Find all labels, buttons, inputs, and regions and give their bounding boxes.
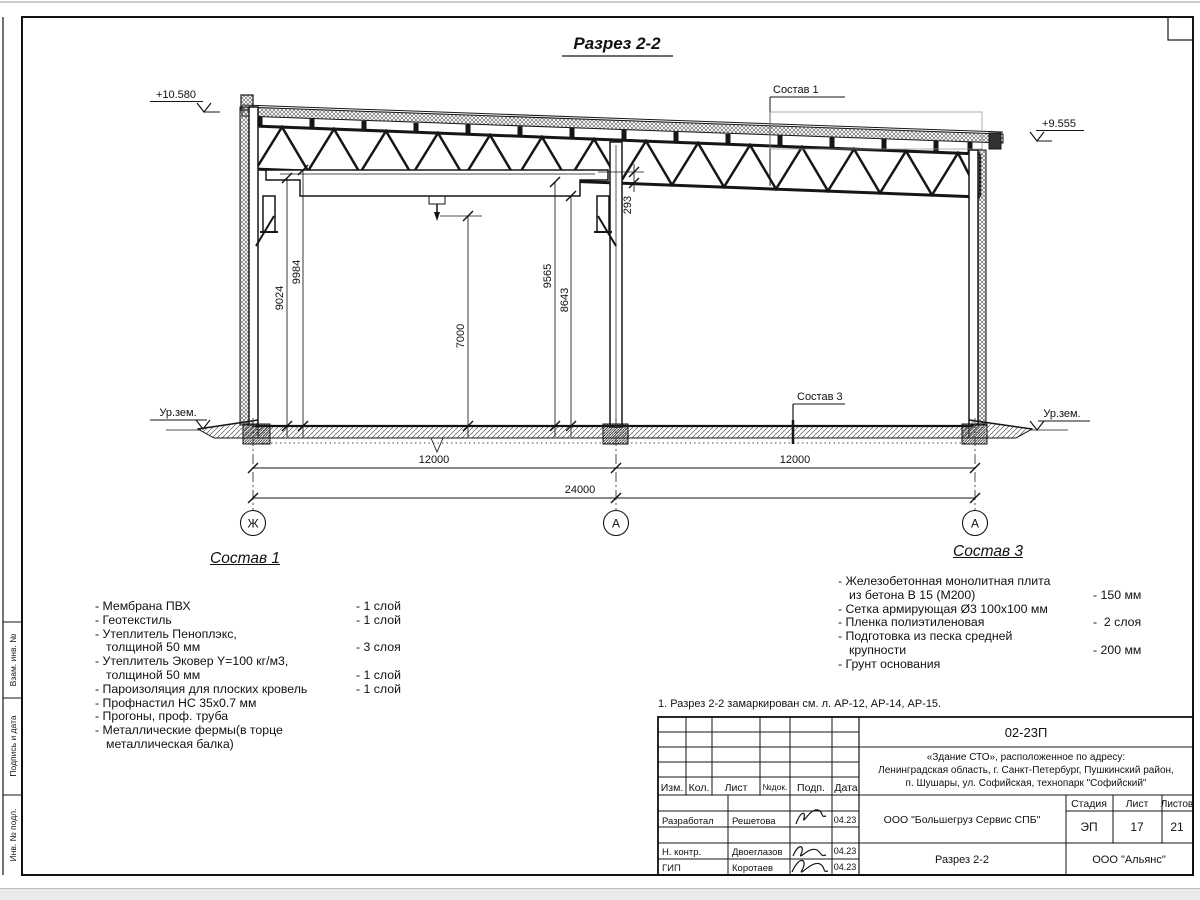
company-name: ООО "Альянс" [1092, 854, 1166, 866]
right-column [969, 150, 978, 425]
ground-label: Ур.зем. [1043, 408, 1080, 420]
ground-label: Ур.зем. [159, 407, 196, 419]
composition-item-qty: - 1 слой [356, 683, 401, 697]
signature [792, 860, 828, 872]
col-podp: Подп. [797, 782, 825, 794]
row-role: Н. контр. [662, 847, 701, 858]
composition1-block: Состав 1 - Мембрана ПВХ - 1 слой - Геоте… [95, 550, 430, 752]
project-line: п. Шушары, ул. Софийская, технопарк "Соф… [906, 777, 1147, 789]
dim-9984: 9984 [291, 260, 303, 284]
composition-item: - Мембрана ПВХ - 1 слой [95, 600, 430, 614]
composition-item: - Прогоны, проф. труба [95, 710, 430, 724]
dim-8643: 8643 [559, 288, 571, 312]
side-strip-label: Подпись и дата [8, 715, 18, 776]
composition-item-text: - Прогоны, проф. труба [95, 710, 356, 724]
roof-right-end-plate [989, 133, 1001, 149]
left-column [249, 107, 258, 425]
composition1-list: - Мембрана ПВХ - 1 слой - Геотекстиль - … [95, 600, 430, 752]
elevation-mark-left: +10.580 [150, 89, 220, 112]
leader-label: Состав 3 [797, 391, 843, 403]
page-edge-bottom [0, 888, 1200, 900]
sheet-value: 17 [1130, 820, 1144, 834]
composition-item-qty: - 1 слой [356, 669, 401, 683]
axis-letter: А [612, 517, 620, 531]
composition-item-text: - Утеплитель Эковер Y=100 кг/м3, толщино… [95, 655, 356, 683]
composition-item-text: - Мембрана ПВХ [95, 600, 356, 614]
stage-label: Стадия [1071, 798, 1107, 810]
composition-item-text: - Геотекстиль [95, 614, 356, 628]
hook-tip [434, 212, 440, 221]
row-name: Решетова [732, 816, 776, 827]
dim-293: 293 [622, 196, 634, 214]
elevation-arrow-icon [197, 103, 211, 112]
composition-item: - Пленка полиэтиленовая - 2 слоя [838, 616, 1173, 630]
composition-item-qty: - 1 слой [356, 600, 401, 614]
slab-break-mark [431, 438, 443, 452]
col-list: Лист [725, 782, 748, 794]
composition-item-text: - Пароизоляция для плоских кровель [95, 683, 356, 697]
dim-bay1: 12000 [419, 454, 450, 466]
composition-item-text: - Подготовка из песка средней крупности [838, 630, 1093, 658]
stage-value: ЭП [1080, 820, 1097, 834]
col-kol: Кол. [689, 782, 710, 794]
signature [796, 810, 826, 824]
composition-item: - Пароизоляция для плоских кровель - 1 с… [95, 683, 430, 697]
composition-item: - Грунт основания [838, 658, 1173, 672]
section-drawing-svg: Взам. инв. № Подпись и дата Инв. № подл.… [0, 0, 1200, 900]
vertical-dimensions: 9024 9984 7000 9565 8643 293 [274, 164, 644, 437]
composition-item-qty: - 1 слой [356, 614, 401, 628]
doc-number: 02-23П [1005, 725, 1048, 740]
composition-item: - Сетка армирующая Ø3 100х100 мм [838, 603, 1173, 617]
composition-item-text: - Утеплитель Пеноплэкс, толщиной 50 мм [95, 628, 356, 656]
elevation-value: +9.555 [1042, 118, 1076, 130]
row-name: Коротаев [732, 863, 773, 874]
leader-label: Состав 1 [773, 84, 819, 96]
sheets-label: Листов [1161, 799, 1194, 810]
project-line: «Здание СТО», расположенное по адресу: [927, 752, 1125, 763]
dim-9565: 9565 [542, 264, 554, 288]
org-name: ООО "Большегруз Сервис СПБ" [884, 814, 1041, 826]
composition-item: - Подготовка из песка средней крупности … [838, 630, 1173, 658]
ground-level-left: Ур.зем. [150, 407, 210, 429]
title-block: 02-23П «Здание СТО», расположенное по ад… [658, 717, 1193, 875]
corner-doc-box [1168, 17, 1193, 40]
composition-item-text: - Грунт основания [838, 658, 1093, 672]
composition-item: - Геотекстиль - 1 слой [95, 614, 430, 628]
composition3-block: Состав 3 - Железобетонная монолитная пли… [838, 543, 1173, 672]
row-role: ГИП [662, 863, 681, 874]
composition3-title: Состав 3 [838, 543, 1138, 561]
project-line: Ленинградская область, г. Санкт-Петербур… [878, 764, 1174, 776]
composition-item-qty: - 2 слоя [1093, 616, 1141, 630]
axis-bubbles: Ж А А [241, 511, 988, 536]
row-date: 04.23 [834, 815, 857, 825]
dim-7000: 7000 [455, 324, 467, 348]
composition-item-text: - Сетка армирующая Ø3 100х100 мм [838, 603, 1093, 617]
composition-item: - Профнастил НС 35х0.7 мм [95, 697, 430, 711]
composition-item-qty: - 150 мм [1093, 589, 1141, 603]
elevation-value: +10.580 [156, 89, 196, 101]
row-name: Двоеглазов [732, 847, 783, 858]
axis-letter: А [971, 517, 979, 531]
side-strip: Взам. инв. № Подпись и дата Инв. № подл. [8, 634, 18, 862]
col-ndok: №док. [763, 782, 788, 792]
drawing-name: Разрез 2-2 [935, 854, 989, 866]
composition-item: - Утеплитель Эковер Y=100 кг/м3, толщино… [95, 655, 430, 683]
composition-item-qty: - 200 мм [1093, 644, 1141, 658]
page-title: Разрез 2-2 [573, 34, 661, 53]
side-strip-label: Взам. инв. № [8, 634, 18, 687]
left-wall-panel [240, 107, 249, 425]
composition1-title: Состав 1 [95, 550, 395, 568]
composition-item: - Железобетонная монолитная плита из бет… [838, 575, 1173, 603]
signature [793, 847, 826, 856]
sheet-label: Лист [1126, 798, 1149, 810]
col-data: Дата [834, 782, 857, 794]
col-izm: Изм. [661, 782, 684, 794]
row-date: 04.23 [834, 862, 857, 872]
composition-item-text: - Металлические фермы(в торце металличес… [95, 724, 356, 752]
composition-item-text: - Железобетонная монолитная плита из бет… [838, 575, 1093, 603]
sheets-value: 21 [1170, 820, 1184, 834]
dim-9024: 9024 [274, 286, 286, 310]
composition-item-qty: - 3 слоя [356, 641, 401, 655]
row-date: 04.23 [834, 846, 857, 856]
ground-level-right: Ур.зем. [1030, 408, 1090, 430]
dim-bay2: 12000 [780, 454, 811, 466]
axis-letter: Ж [247, 517, 258, 531]
composition-item: - Утеплитель Пеноплэкс, толщиной 50 мм -… [95, 628, 430, 656]
elevation-mark-right: +9.555 [1030, 118, 1084, 141]
right-wall-panel [978, 150, 986, 425]
hoist-trolley [429, 196, 445, 204]
dim-total: 24000 [565, 484, 596, 496]
note-text: 1. Разрез 2-2 замаркирован см. л. АР-12,… [658, 698, 941, 710]
composition-item-text: - Пленка полиэтиленовая [838, 616, 1093, 630]
drawing-sheet: Взам. инв. № Подпись и дата Инв. № подл.… [0, 0, 1200, 900]
composition-item: - Металлические фермы(в торце металличес… [95, 724, 430, 752]
crane-beam [256, 170, 616, 246]
composition-item-text: - Профнастил НС 35х0.7 мм [95, 697, 356, 711]
side-strip-label: Инв. № подл. [8, 809, 18, 862]
elevation-arrow-icon [1030, 132, 1044, 141]
composition3-list: - Железобетонная монолитная плита из бет… [838, 575, 1173, 672]
row-role: Разработал [662, 816, 714, 827]
